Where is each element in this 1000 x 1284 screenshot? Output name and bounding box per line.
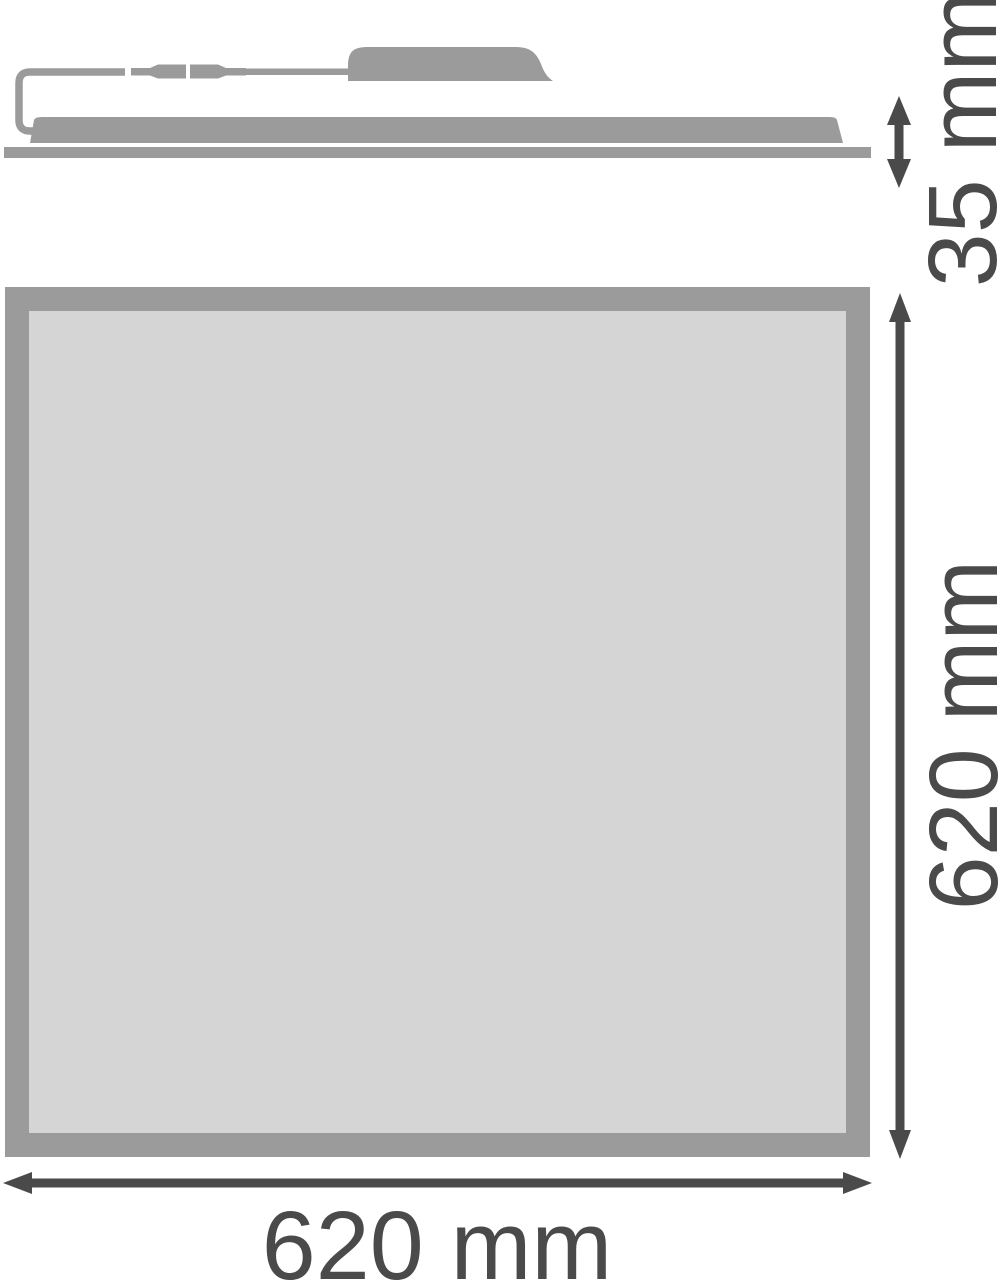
arrow-right-icon (843, 1172, 872, 1194)
arrow-left-icon (3, 1172, 32, 1194)
panel-face (29, 311, 846, 1133)
front-view (3, 287, 911, 1194)
dimension-drawing: 35 mm 620 mm 620 mm (0, 0, 1000, 1284)
arrow-up-icon (889, 293, 911, 322)
side-view-panel-body (30, 117, 843, 143)
arrow-down-icon (889, 1130, 911, 1159)
width-dimension-label: 620 mm (237, 1196, 637, 1284)
cable-connector-left (131, 65, 186, 79)
height-dimension-arrow (889, 293, 911, 1159)
height-dimension-label: 620 mm (914, 550, 1000, 920)
side-view (4, 47, 911, 188)
driver-box (348, 47, 553, 81)
cable-connector-right (190, 65, 246, 79)
depth-dimension-label: 35 mm (913, 0, 1000, 289)
side-view-base-plate (4, 147, 871, 158)
drawing-shapes (0, 0, 1000, 1284)
